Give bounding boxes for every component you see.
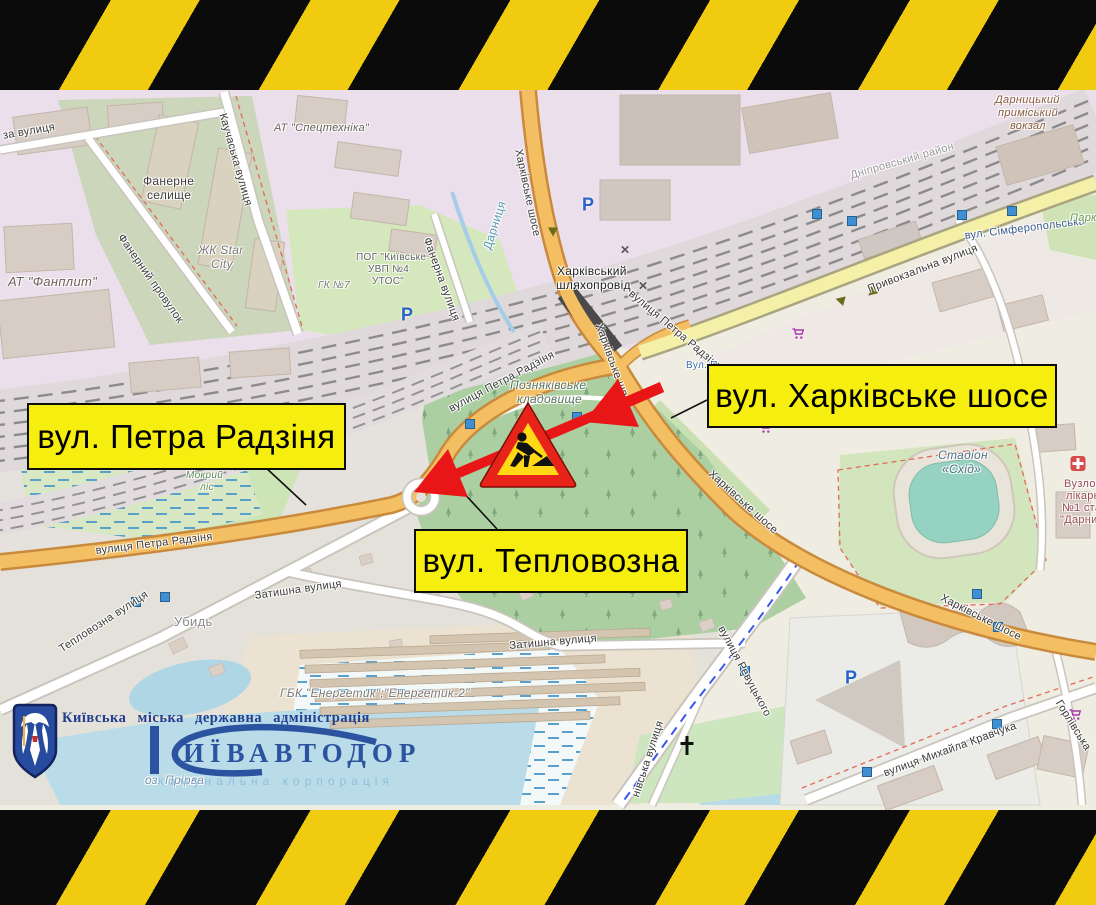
label-petra-radzinya: вул. Петра Радзіня [27, 403, 346, 470]
kyivavtodor-logo: Київська міська державна адміністрація И… [8, 700, 408, 800]
hazard-tape-top [0, 0, 1096, 90]
label-teplovozna: вул. Тепловозна [414, 529, 688, 593]
logo-admin-text: Київська міська державна адміністрація [62, 710, 370, 727]
kyiv-coat-of-arms [14, 705, 56, 777]
poster-stage: PPP×× за вулицяКаучаська вулицяАТ "Спецт… [0, 0, 1096, 905]
hazard-tape-bottom [0, 810, 1096, 905]
label-kharkivske-shose: вул. Харківське шосе [707, 364, 1057, 428]
logo-sub-text: комунальна корпорація [158, 774, 394, 788]
logo-brand-text: ИЇВАВТОДОР [183, 738, 421, 769]
logo-k-bar [150, 726, 159, 774]
